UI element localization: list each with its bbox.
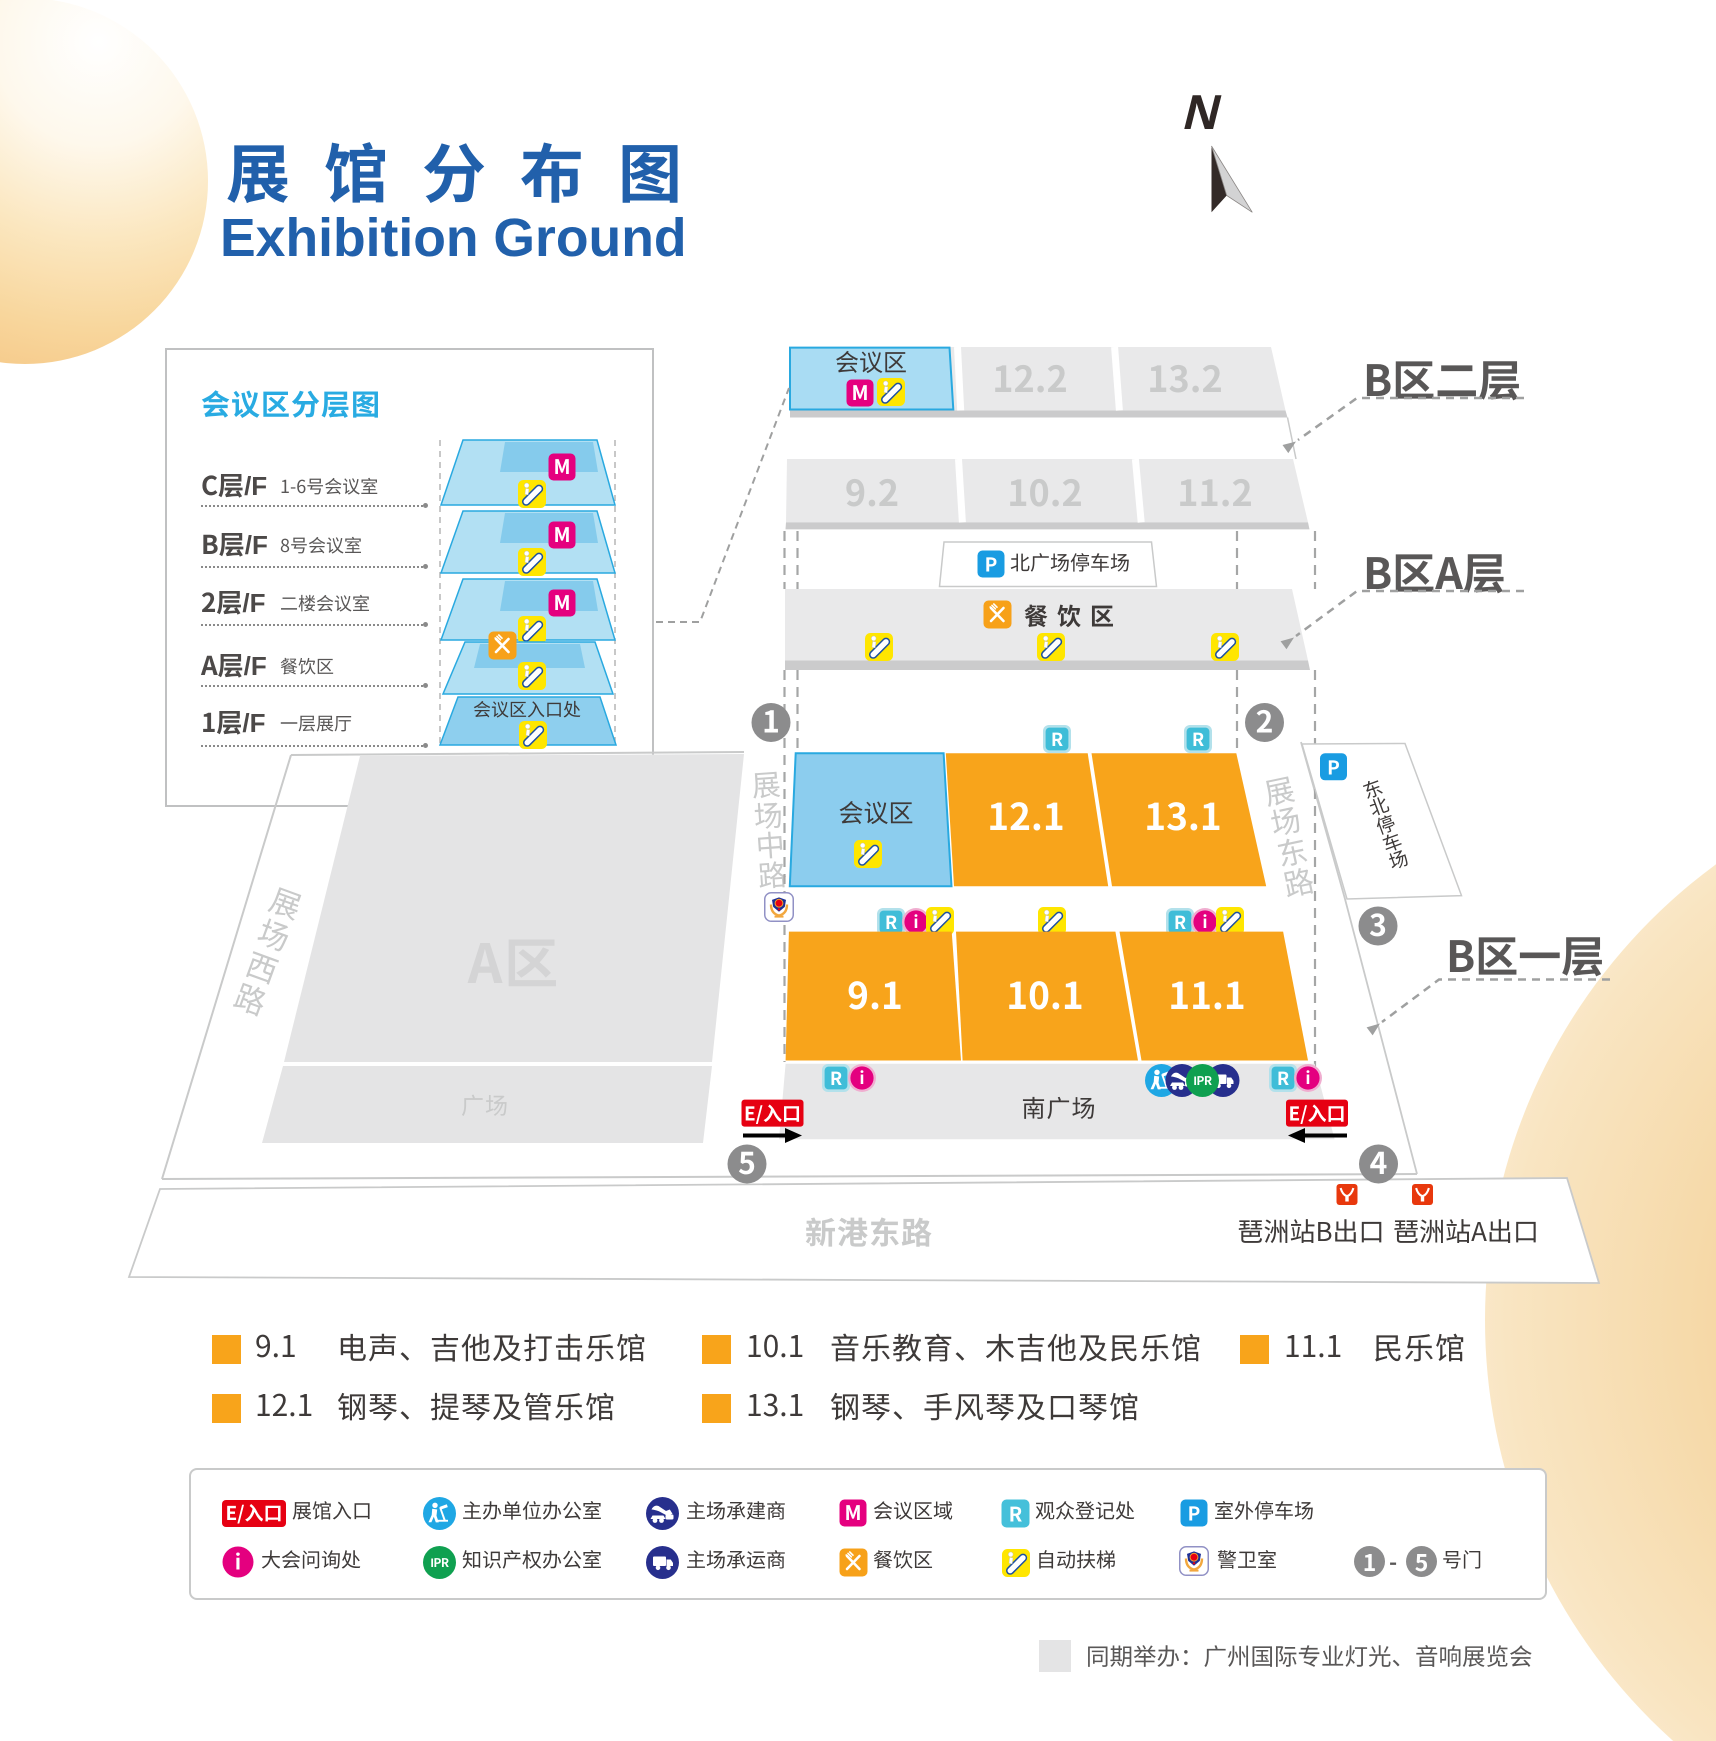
svg-text:会议区: 会议区: [838, 794, 913, 830]
svg-text:2: 2: [1256, 698, 1274, 742]
svg-text:9.2: 9.2: [845, 465, 899, 517]
svg-text:会议区: 会议区: [835, 343, 907, 378]
svg-text:E/入口: E/入口: [1288, 1100, 1345, 1127]
svg-text:展场西路: 展场西路: [223, 880, 312, 1023]
svg-text:餐饮区: 餐饮区: [1024, 597, 1123, 632]
svg-text:B区一层: B区一层: [1446, 923, 1604, 985]
svg-text:10.2: 10.2: [1007, 465, 1082, 517]
svg-text:广场: 广场: [461, 1087, 509, 1121]
svg-text:新港东路: 新港东路: [805, 1208, 933, 1253]
svg-text:琶洲站B出口: 琶洲站B出口: [1237, 1212, 1384, 1249]
svg-text:3: 3: [1369, 901, 1387, 945]
svg-text:会议区入口处: 会议区入口处: [473, 696, 581, 722]
svg-text:A区: A区: [467, 920, 561, 999]
svg-text:E/入口: E/入口: [744, 1100, 801, 1127]
svg-text:11.1: 11.1: [1168, 966, 1246, 1020]
svg-text:琶洲站A出口: 琶洲站A出口: [1393, 1212, 1539, 1249]
svg-text:1: 1: [762, 698, 780, 742]
svg-text:12.1: 12.1: [987, 787, 1065, 841]
svg-text:12.2: 12.2: [992, 351, 1067, 403]
svg-text:13.1: 13.1: [1144, 787, 1222, 841]
svg-text:南广场: 南广场: [1022, 1089, 1097, 1124]
svg-text:9.1: 9.1: [847, 966, 903, 1020]
svg-text:B区A层: B区A层: [1363, 540, 1506, 602]
svg-text:13.2: 13.2: [1147, 351, 1222, 403]
svg-text:4: 4: [1370, 1139, 1388, 1183]
svg-text:北广场停车场: 北广场停车场: [1010, 547, 1130, 576]
svg-text:展场中路: 展场中路: [744, 769, 794, 892]
svg-text:5: 5: [738, 1139, 756, 1183]
svg-text:11.2: 11.2: [1177, 465, 1252, 517]
svg-text:B区二层: B区二层: [1363, 347, 1521, 409]
svg-text:10.1: 10.1: [1006, 966, 1084, 1020]
